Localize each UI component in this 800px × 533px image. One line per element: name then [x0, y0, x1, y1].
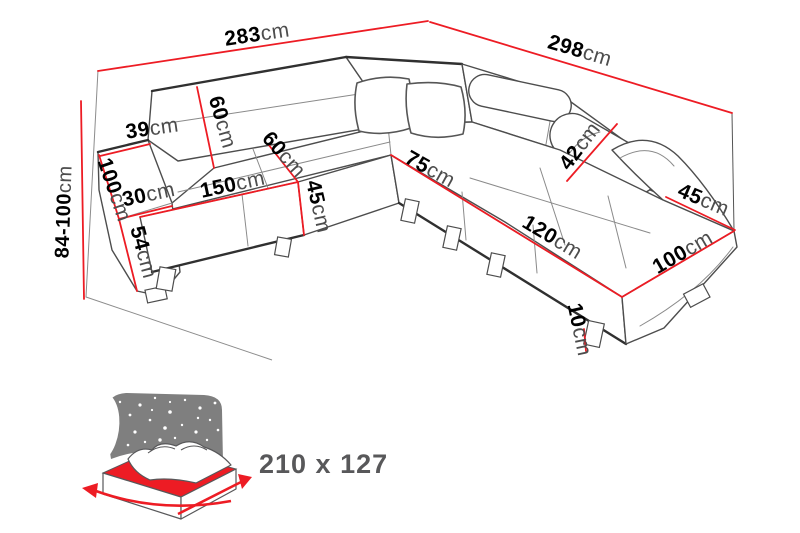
room-right-wall-line: [732, 113, 734, 230]
sofa-dimension-diagram: 283cm 298cm 84-100cm 39cm 60cm 100cm 30c…: [0, 0, 800, 533]
throw-pillow-left: [355, 77, 413, 133]
diagram-canvas: 283cm 298cm 84-100cm 39cm 60cm 100cm 30c…: [0, 0, 800, 533]
dim-line-84-100: [81, 101, 84, 299]
throw-pillow-right: [406, 83, 465, 138]
sofa-leg: [275, 237, 292, 257]
sofa-drawing: [98, 57, 737, 347]
bed-width-arrowhead-icon: [82, 483, 98, 498]
bed-size-label: 210 x 127: [259, 449, 388, 479]
bed-length-arrowhead-icon: [238, 474, 252, 489]
dim-label-283: 283cm: [223, 18, 291, 50]
bed-icon: [74, 390, 252, 519]
dim-label-84-100: 84-100cm: [51, 165, 76, 259]
dim-label-298: 298cm: [545, 30, 614, 71]
